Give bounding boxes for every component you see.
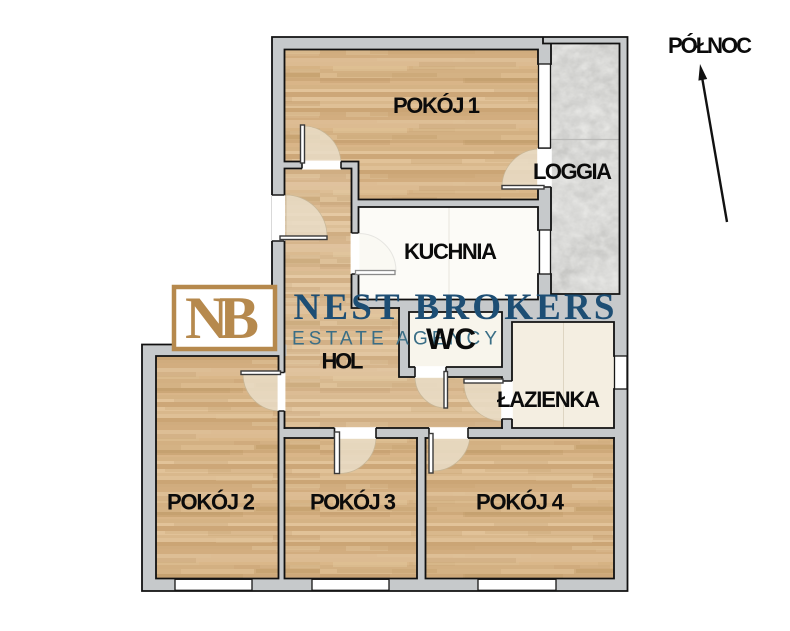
svg-text:ŁAZIENKA: ŁAZIENKA [497, 387, 600, 412]
svg-text:WC: WC [426, 323, 476, 356]
svg-text:LOGGIA: LOGGIA [533, 159, 612, 184]
svg-text:HOL: HOL [322, 349, 364, 374]
svg-text:POKÓJ 3: POKÓJ 3 [310, 490, 396, 515]
svg-text:KUCHNIA: KUCHNIA [404, 239, 497, 264]
svg-text:NEST BROKERS: NEST BROKERS [294, 287, 615, 328]
svg-text:POKÓJ 4: POKÓJ 4 [476, 490, 565, 515]
svg-text:POKÓJ 1: POKÓJ 1 [393, 93, 480, 118]
svg-text:PÓŁNOC: PÓŁNOC [668, 33, 752, 58]
svg-text:B: B [219, 285, 259, 351]
svg-text:POKÓJ 2: POKÓJ 2 [167, 490, 255, 515]
